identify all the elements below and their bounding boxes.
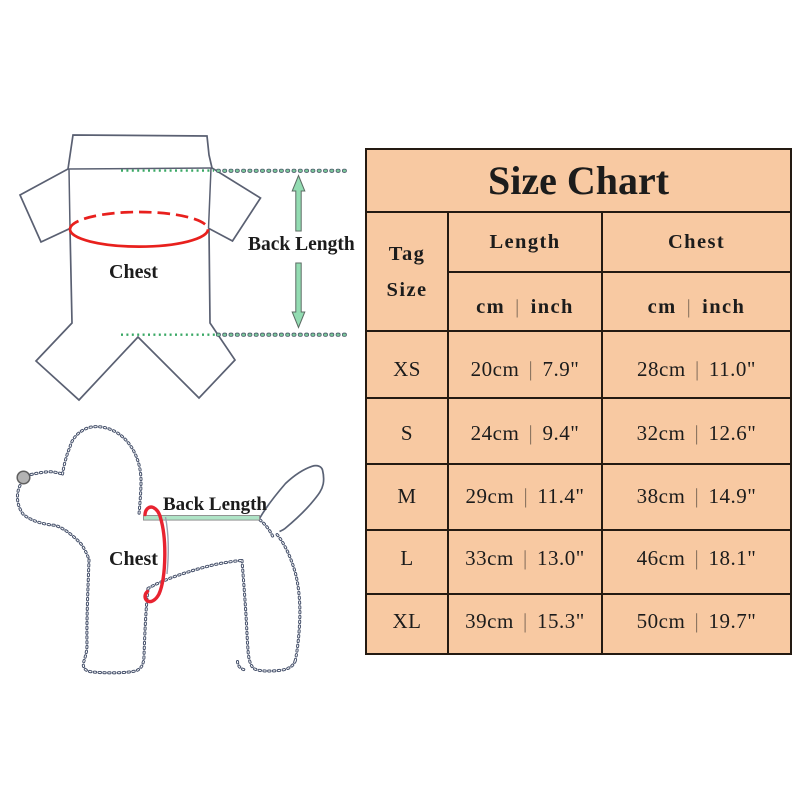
svg-text:Back Length: Back Length <box>248 234 355 255</box>
svg-text:Chest: Chest <box>109 548 158 570</box>
svg-text:Chest: Chest <box>109 261 158 283</box>
svg-text:Back Length: Back Length <box>163 494 267 515</box>
